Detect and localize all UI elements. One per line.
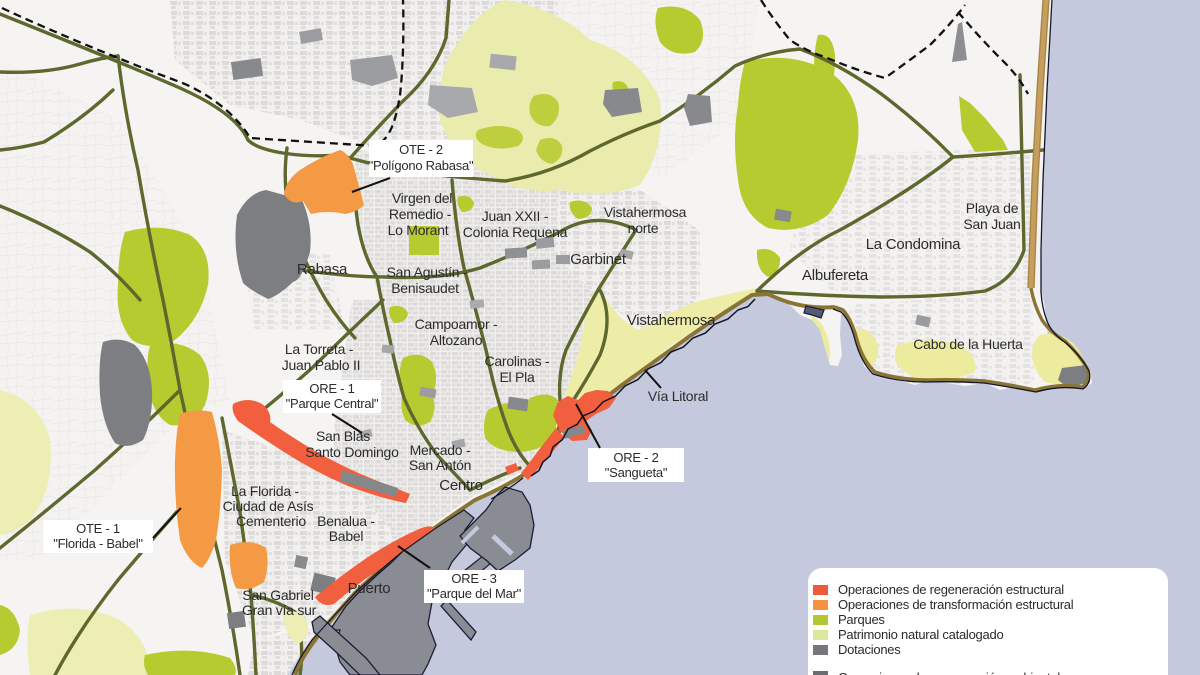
svg-text:Albufereta: Albufereta xyxy=(802,267,869,284)
svg-text:Carolinas -: Carolinas - xyxy=(485,353,551,369)
svg-text:Remedio -: Remedio - xyxy=(389,206,452,222)
svg-text:Parques: Parques xyxy=(838,612,885,627)
svg-text:Puerto: Puerto xyxy=(348,580,391,597)
svg-text:Santo Domingo: Santo Domingo xyxy=(305,444,399,460)
svg-text:Campoamor -: Campoamor - xyxy=(415,316,498,332)
svg-text:San Agustín -: San Agustín - xyxy=(387,264,468,280)
svg-text:Vistahermosa: Vistahermosa xyxy=(604,204,687,220)
svg-text:Juan XXII -: Juan XXII - xyxy=(482,208,549,224)
svg-text:Playa de: Playa de xyxy=(966,200,1019,216)
svg-text:"Parque del Mar": "Parque del Mar" xyxy=(427,586,522,601)
svg-text:Centro: Centro xyxy=(439,477,483,494)
svg-text:Operaciones de transformación: Operaciones de transformación estructura… xyxy=(838,597,1074,612)
svg-text:ORE - 1: ORE - 1 xyxy=(309,381,354,396)
svg-text:La Florida -: La Florida - xyxy=(231,483,299,499)
svg-text:Vistahermosa: Vistahermosa xyxy=(627,312,716,329)
svg-text:Rabasa: Rabasa xyxy=(297,261,348,278)
svg-text:Dotaciones: Dotaciones xyxy=(838,642,901,657)
svg-text:Babel: Babel xyxy=(329,528,364,544)
svg-text:Virgen del: Virgen del xyxy=(392,190,452,206)
svg-text:ORE - 3: ORE - 3 xyxy=(451,571,496,586)
svg-text:"Polígono Rabasa": "Polígono Rabasa" xyxy=(369,158,474,173)
svg-text:OTE - 1: OTE - 1 xyxy=(76,521,120,536)
svg-text:Lo Morant: Lo Morant xyxy=(388,222,449,238)
svg-text:"Sangueta": "Sangueta" xyxy=(605,465,668,480)
svg-text:"Florida - Babel": "Florida - Babel" xyxy=(53,536,143,551)
svg-text:Benisaudet: Benisaudet xyxy=(391,280,459,296)
svg-text:Cementerio: Cementerio xyxy=(236,513,306,529)
svg-text:Vía Litoral: Vía Litoral xyxy=(648,388,708,404)
svg-text:Benalua -: Benalua - xyxy=(317,513,375,529)
svg-text:norte: norte xyxy=(628,220,659,236)
svg-text:San Gabriel: San Gabriel xyxy=(242,587,313,603)
svg-text:Ciudad de Asís: Ciudad de Asís xyxy=(223,498,314,514)
svg-text:Altozano: Altozano xyxy=(430,332,483,348)
svg-text:Operaciones de regeneración es: Operaciones de regeneración estructural xyxy=(838,582,1064,597)
svg-text:"Parque Central": "Parque Central" xyxy=(286,396,379,411)
svg-text:Gran vía sur: Gran vía sur xyxy=(242,602,317,618)
svg-text:La Condomina: La Condomina xyxy=(866,236,961,253)
svg-text:San Juan: San Juan xyxy=(963,216,1020,232)
svg-text:ORE - 2: ORE - 2 xyxy=(613,450,658,465)
svg-text:OTE - 2: OTE - 2 xyxy=(399,142,443,157)
svg-text:Colonia Requena: Colonia Requena xyxy=(463,224,568,240)
svg-text:Cabo de la Huerta: Cabo de la Huerta xyxy=(913,336,1023,352)
svg-text:Garbinet: Garbinet xyxy=(570,251,627,268)
svg-text:San Blás: San Blás xyxy=(316,428,370,444)
svg-text:San Antón: San Antón xyxy=(409,457,471,473)
svg-text:Mercado -: Mercado - xyxy=(410,442,471,458)
svg-text:El Pla: El Pla xyxy=(499,369,535,385)
svg-text:Juan Pablo II: Juan Pablo II xyxy=(282,357,360,373)
svg-text:Patrimonio natural catalogado: Patrimonio natural catalogado xyxy=(838,627,1003,642)
svg-text:Operaciones de regeneración am: Operaciones de regeneración ambiental xyxy=(838,670,1060,675)
svg-text:La Torreta -: La Torreta - xyxy=(285,341,354,357)
